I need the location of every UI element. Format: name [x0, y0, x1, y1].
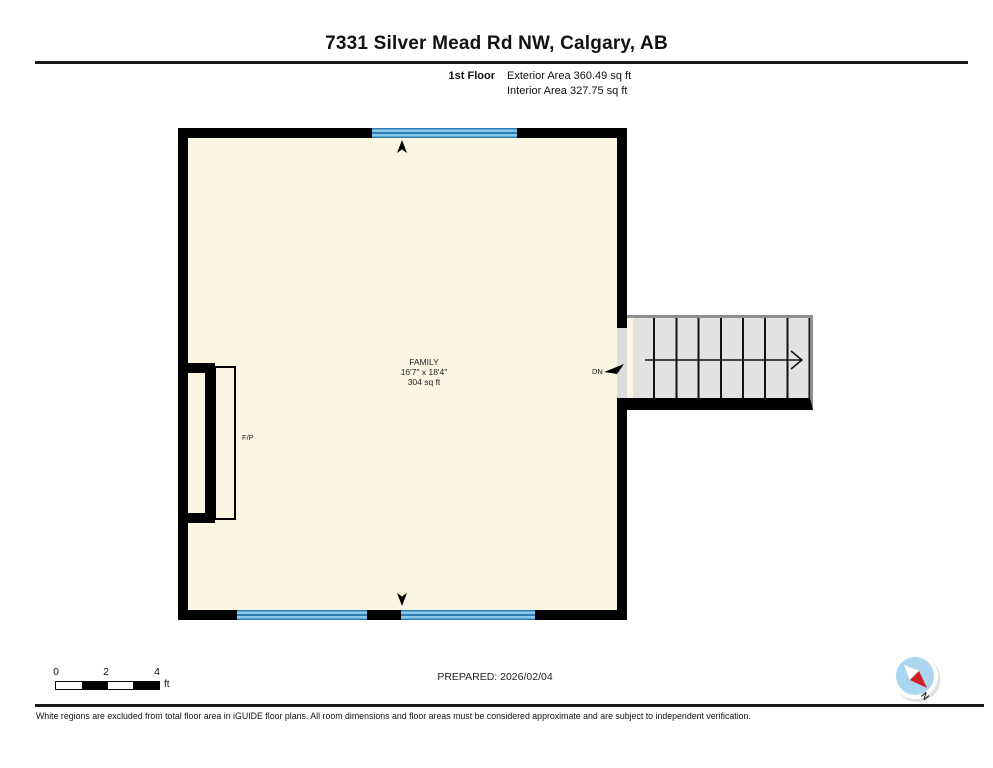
dn-arrow-icon: [604, 361, 626, 376]
scale-segment: [133, 682, 159, 689]
window-top: [372, 128, 517, 138]
disclaimer-text: White regions are excluded from total fl…: [36, 711, 966, 721]
room-area: 304 sq ft: [354, 377, 494, 387]
scale-unit: ft: [164, 679, 170, 690]
window-bottom-right: [401, 610, 535, 620]
dn-label: DN: [592, 367, 603, 376]
scale-tick-0: 0: [46, 666, 66, 678]
room-dimensions: 16'7" x 18'4": [354, 367, 494, 377]
scale-segment: [82, 682, 108, 689]
scale-tick-2: 2: [96, 666, 116, 678]
fireplace-hearth: [214, 366, 236, 520]
window-bottom-left: [237, 610, 367, 620]
scale-segment: [56, 682, 82, 689]
scale-tick-4: 4: [147, 666, 167, 678]
room-label-block: FAMILY 16'7" x 18'4" 304 sq ft: [354, 357, 494, 387]
room-name: FAMILY: [354, 357, 494, 367]
scale-bar: [55, 681, 160, 690]
entry-arrow-up-icon: [397, 140, 407, 153]
prepared-date: PREPARED: 2026/02/04: [395, 671, 595, 683]
scale-segment: [108, 682, 134, 689]
page-title: 7331 Silver Mead Rd NW, Calgary, AB: [0, 33, 993, 55]
entry-arrow-down-icon: [397, 593, 407, 606]
floor-plan-page: 7331 Silver Mead Rd NW, Calgary, AB 1st …: [0, 0, 993, 768]
floor-label: 1st Floor: [375, 70, 495, 82]
footer-divider: [35, 704, 984, 707]
header-divider: [35, 61, 968, 64]
interior-area-text: Interior Area 327.75 sq ft: [507, 85, 627, 97]
fireplace-firebox: [178, 363, 215, 523]
stairs-direction-arrow: [640, 350, 808, 370]
exterior-area-text: Exterior Area 360.49 sq ft: [507, 70, 631, 82]
fireplace-label: F/P: [242, 433, 254, 442]
compass-icon: [888, 650, 944, 706]
